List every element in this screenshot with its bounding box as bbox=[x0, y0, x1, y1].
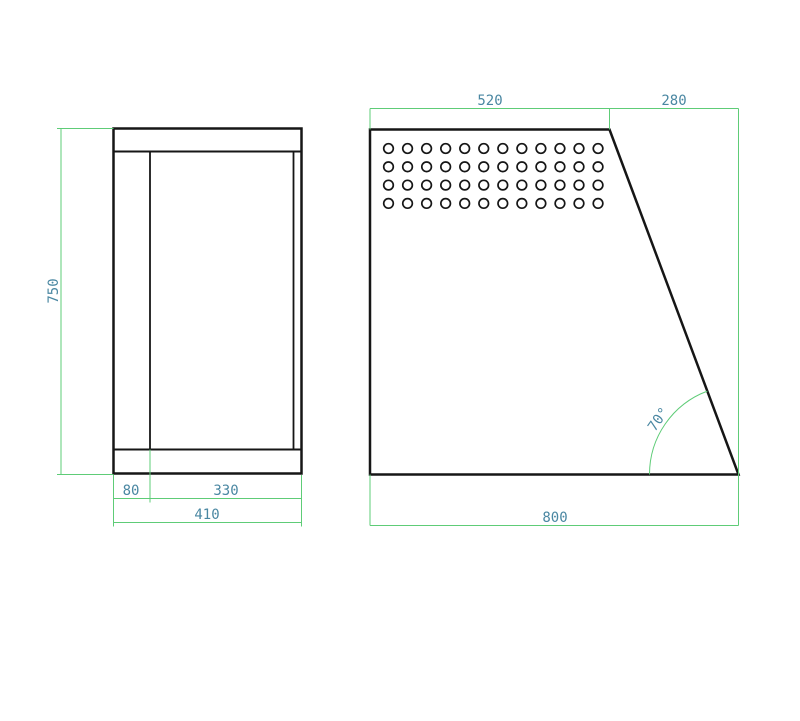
angle-label: 70° bbox=[645, 405, 673, 435]
vent-hole bbox=[479, 199, 489, 209]
vent-hole bbox=[593, 199, 603, 209]
vent-hole bbox=[441, 180, 451, 190]
dim-label-width-right: 330 bbox=[213, 483, 238, 499]
front-view bbox=[114, 129, 302, 474]
vent-hole bbox=[479, 162, 489, 172]
vent-hole bbox=[403, 180, 413, 190]
vent-hole bbox=[555, 180, 565, 190]
vent-hole bbox=[460, 180, 470, 190]
vent-hole bbox=[536, 199, 546, 209]
vent-hole bbox=[384, 199, 394, 209]
vent-hole bbox=[517, 180, 527, 190]
vent-hole bbox=[441, 144, 451, 154]
vent-hole bbox=[574, 199, 584, 209]
vent-hole bbox=[593, 144, 603, 154]
vent-hole bbox=[536, 180, 546, 190]
vent-hole bbox=[517, 162, 527, 172]
vent-hole bbox=[422, 199, 432, 209]
vent-hole bbox=[536, 162, 546, 172]
vent-hole bbox=[403, 162, 413, 172]
front-view-outline bbox=[114, 129, 302, 474]
vent-hole bbox=[441, 162, 451, 172]
vent-hole bbox=[384, 180, 394, 190]
vent-hole bbox=[479, 144, 489, 154]
dim-label-top-right: 280 bbox=[661, 93, 686, 109]
vent-hole bbox=[403, 199, 413, 209]
vent-hole bbox=[555, 162, 565, 172]
side-view-dimensions: 520 280 800 70° bbox=[370, 93, 739, 526]
vent-hole bbox=[536, 144, 546, 154]
vent-hole bbox=[479, 180, 489, 190]
dim-label-width-left: 80 bbox=[123, 483, 140, 499]
vent-hole bbox=[498, 162, 508, 172]
vent-hole bbox=[555, 199, 565, 209]
dim-label-top-left: 520 bbox=[477, 93, 502, 109]
vent-hole bbox=[555, 144, 565, 154]
vent-hole bbox=[517, 199, 527, 209]
technical-drawing: 750 80 330 410 520 280 800 bbox=[0, 0, 800, 721]
dim-label-height: 750 bbox=[46, 278, 62, 303]
vent-hole bbox=[384, 162, 394, 172]
vent-hole bbox=[460, 144, 470, 154]
vent-hole bbox=[403, 144, 413, 154]
vent-hole bbox=[460, 199, 470, 209]
front-view-dimensions: 750 80 330 410 bbox=[46, 129, 302, 527]
drawing-canvas: 750 80 330 410 520 280 800 bbox=[0, 0, 800, 721]
vent-hole bbox=[574, 180, 584, 190]
vent-hole bbox=[517, 144, 527, 154]
vent-hole bbox=[593, 162, 603, 172]
vent-hole bbox=[460, 162, 470, 172]
vent-hole bbox=[422, 144, 432, 154]
vent-hole bbox=[498, 180, 508, 190]
vent-hole bbox=[384, 144, 394, 154]
vent-hole bbox=[498, 199, 508, 209]
dim-label-bottom: 800 bbox=[542, 510, 567, 526]
hole-grid bbox=[384, 144, 603, 209]
side-view bbox=[370, 130, 739, 475]
vent-hole bbox=[593, 180, 603, 190]
dim-label-width-total: 410 bbox=[194, 507, 219, 523]
vent-hole bbox=[422, 162, 432, 172]
vent-hole bbox=[574, 162, 584, 172]
vent-hole bbox=[441, 199, 451, 209]
vent-hole bbox=[574, 144, 584, 154]
vent-hole bbox=[498, 144, 508, 154]
vent-hole bbox=[422, 180, 432, 190]
